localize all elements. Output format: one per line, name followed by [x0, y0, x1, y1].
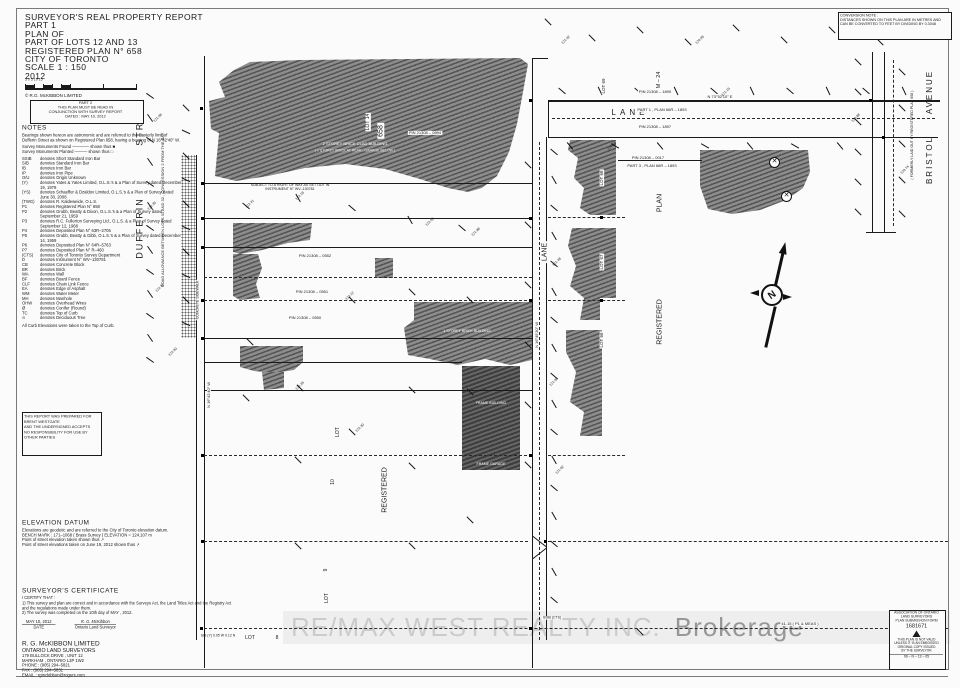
lane-west-line [532, 58, 533, 668]
aols-stamp: ASSOCIATION OF ONTARIOLAND SURVEYORSPLAN… [889, 610, 946, 670]
lot-line-dashed [548, 300, 625, 301]
north-needle-head [779, 241, 789, 254]
north-point-left [750, 290, 759, 296]
north-needle-bottom [764, 306, 776, 348]
drawing-element: ASSOCIATION OF ONTARIOLAND SURVEYORSPLAN… [890, 611, 943, 623]
lane-north-edge [548, 100, 940, 102]
report-line: AND THE UNDERSIGNED ACCEPTS [24, 425, 99, 430]
drawing-element: R. G. McKIBBON LIMITEDONTARIO LAND SURVE… [22, 640, 172, 678]
scale-bar: 5 0 5 10 15 [25, 80, 137, 92]
north-circle: N [761, 284, 783, 306]
drawing-element: THIS REPORT WAS PREPARED FORBRENT WESTGA… [23, 413, 100, 441]
drawing-element [52, 84, 53, 90]
notes-block: NOTES Bearings shown hereon are astronom… [22, 124, 342, 533]
lane-south-edge [548, 137, 938, 138]
lane-east-line [546, 137, 547, 640]
firm-line: EMAIL : rgmckibbon@rogers.com [22, 673, 172, 678]
conversion-note-box: CONVERSION NOTE :DISTANCES SHOWN ON THIS… [838, 12, 952, 40]
building-footprint [375, 258, 393, 278]
drawing-element: MAY 10, 2012 DATE R. G. McKibbon Ontario… [22, 619, 237, 629]
north-arrow: N [740, 248, 810, 348]
lot-line [618, 160, 702, 161]
copyright: © R.G. McKIBBON LIMITED [25, 93, 82, 98]
drawing-element: R. G. McKibbon Ontario Land Surveyor [75, 619, 116, 629]
certificate-item: 1) This survey and plan are correct and … [22, 601, 237, 610]
drawing-element: Elevations are geodetic and are referred… [22, 528, 242, 547]
firm-block: R. G. McKIBBON LIMITEDONTARIO LAND SURVE… [22, 640, 322, 688]
drawing-element [61, 85, 70, 88]
drawing-element [34, 84, 35, 90]
lot-line-dashed [548, 217, 625, 218]
elevation-line: Point of street elevations taken on June… [22, 542, 242, 547]
drawing-element [136, 84, 137, 90]
drawing-element: CONVERSION NOTE :DISTANCES SHOWN ON THIS… [839, 13, 950, 27]
elevation-heading: ELEVATION DATUM [22, 519, 242, 526]
drawing-element [103, 84, 104, 90]
drawing-element: SURVEYOR'S CERTIFICATE I CERTIFY THAT : … [22, 587, 237, 630]
drawing-element: MAY 10, 2012 DATE [22, 619, 56, 629]
stamp-footer: 96 – N – 13 – 05 [890, 654, 943, 659]
scale-numbers: 5 0 5 10 15 [25, 78, 137, 82]
bristol-east-line [884, 52, 885, 232]
drawing-element: NOTES Bearings shown hereon are astronom… [22, 124, 182, 328]
lot-line-dashed [548, 541, 948, 542]
bristol-west-line [872, 52, 873, 232]
legend-desc: denotes Deciduous Tree [40, 316, 182, 321]
north-point-right [783, 294, 792, 300]
bristol-end-cap [866, 232, 896, 233]
report-disclaimer-box: THIS REPORT WAS PREPARED FORBRENT WESTGA… [22, 412, 102, 456]
title-line: SCALE 1 : 150 [25, 63, 203, 71]
notes-footer: All Curb Elevations were taken to the To… [22, 323, 182, 328]
lane-west-cap [548, 100, 549, 137]
drawing-element: ASSOCIATION OF ONTARIOLAND SURVEYORSPLAN… [890, 611, 943, 659]
certificate-heading: SURVEYOR'S CERTIFICATE [22, 587, 237, 594]
drawing-element [25, 88, 137, 90]
drawing-element [43, 85, 52, 88]
legend-abbr: ⊙ [22, 316, 40, 321]
drawing-element: THIS PLAN IS NOT VALIDUNLESS IT IS AN EM… [890, 638, 943, 653]
certificate-signature-label: Ontario Land Surveyor [75, 625, 116, 630]
stamp-body-line: BY THE SURVEYOR [890, 649, 943, 653]
lane-centerline [539, 142, 540, 640]
report-line: OTHER PARTIES [24, 435, 99, 440]
drawing-element: PART 2THIS PLAN MUST BE READ INCONJUNCTI… [31, 101, 140, 119]
firm-line: R. G. McKIBBON LIMITED [22, 640, 172, 647]
drawing-element: ELEVATION DATUM Elevations are geodetic … [22, 519, 242, 547]
lane-center-dash [552, 118, 935, 119]
lane-corner [532, 58, 548, 59]
drawing-element [70, 84, 71, 90]
certificate-item: 2) The survey was completed on the 10th … [22, 611, 237, 616]
survey-plan-sheet: RE/MAX WEST REALTY INC. Brokerage [0, 0, 960, 688]
drawing-element [25, 85, 34, 88]
north-label: N [759, 282, 784, 307]
lot-line-dashed [548, 455, 625, 456]
certificate-intro: I CERTIFY THAT : [22, 595, 237, 600]
report-line: THIS REPORT WAS PREPARED FOR [24, 414, 99, 419]
notes-bearing: Bearings shown hereon are astronomic and… [22, 133, 182, 143]
aols-seal-icon [913, 631, 921, 638]
bristol-centerline [893, 60, 894, 226]
notes-monument-planted: Survey Monuments Planted ——— shown thus … [22, 149, 182, 154]
drawing-element: 1) This survey and plan are correct and … [22, 601, 237, 615]
part2-note-box: PART 2THIS PLAN MUST BE READ INCONJUNCTI… [30, 100, 144, 124]
legend-item: ⊙denotes Deciduous Tree [22, 316, 182, 321]
notes-heading: NOTES [22, 124, 182, 131]
part2-line: DATED : MAY 10, 2012 [31, 114, 140, 118]
stamp-number: 1681671 [890, 623, 943, 629]
title-block: SURVEYOR'S REAL PROPERTY REPORTPART 1PLA… [25, 13, 203, 80]
legend-list: SSIBdenotes Short Standard Iron BarSIBde… [22, 156, 182, 320]
elevation-datum-block: ELEVATION DATUM Elevations are geodetic … [22, 519, 462, 576]
stamp-header-line: PLAN SUBMISSION FORM [890, 619, 943, 623]
certificate-date-label: DATE [33, 625, 44, 630]
conversion-note-line: CAN BE CONVERTED TO FEET BY DIVIDING BY … [840, 22, 949, 26]
